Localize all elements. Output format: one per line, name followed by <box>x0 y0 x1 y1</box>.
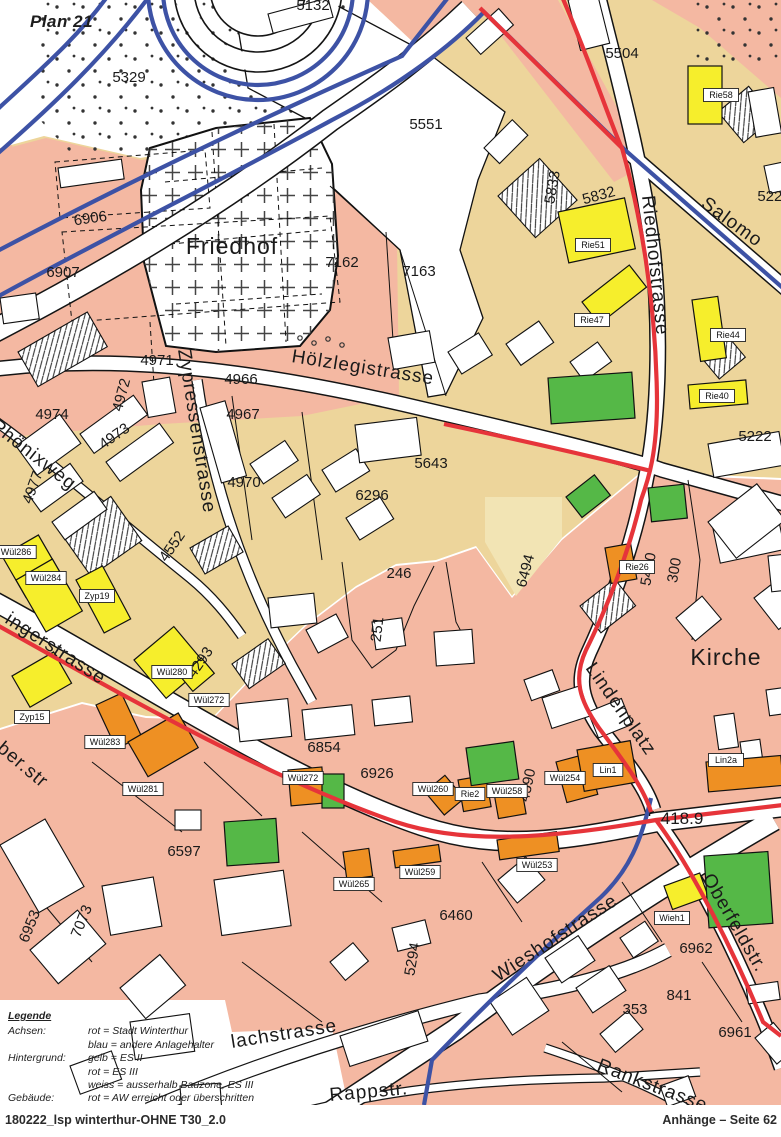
building-tag-label: Wül280 <box>157 667 188 677</box>
legend-row: weiss = ausserhalb Bauzone, ES III <box>8 1079 338 1092</box>
building-tag-label: Rie47 <box>580 315 604 325</box>
parcel-label: 4971 <box>140 352 173 369</box>
legend-row-category <box>8 1066 88 1079</box>
legend-row-text: rot = AW erreicht oder überschritten <box>88 1092 254 1105</box>
building-tag: Wül283 <box>85 736 125 749</box>
parcel-label: 251 <box>368 616 388 643</box>
parcel-label: 246 <box>386 565 411 582</box>
building-tag: Rie2 <box>455 788 485 801</box>
legend-row-text: blau = andere Anlagehalter <box>88 1039 214 1052</box>
parcel-label: 6962 <box>679 940 712 957</box>
building-tag-label: Wül259 <box>405 867 436 877</box>
parcel-label: 4967 <box>226 406 259 423</box>
building-tag-label: Wül286 <box>1 547 32 557</box>
parcel-label: 7163 <box>402 263 435 280</box>
building-tag: Wül272 <box>283 772 323 785</box>
building-tag-label: Lin2a <box>715 755 737 765</box>
building-tag-label: Zyp15 <box>19 712 44 722</box>
building-tag-label: Rie51 <box>581 240 605 250</box>
building-tag-label: Wül281 <box>128 784 159 794</box>
building-tag: Rie44 <box>711 329 746 342</box>
building-tag: Wül254 <box>545 772 585 785</box>
plan-page: 5132532955045551690669077162716358335832… <box>0 0 781 1137</box>
building-tag: Wül265 <box>334 878 374 891</box>
parcel-label: 6460 <box>439 907 472 924</box>
footer-filename: 180222_lsp winterthur-OHNE T30_2.0 <box>5 1113 226 1127</box>
building-tag: Wül280 <box>152 666 192 679</box>
parcel-label: 6961 <box>718 1024 751 1041</box>
building-tag: Wül281 <box>123 783 163 796</box>
parcel-label: 7162 <box>325 254 358 271</box>
parcel-label: 6907 <box>46 264 79 281</box>
building-tag-label: Rie44 <box>716 330 740 340</box>
building-tag: Zyp19 <box>80 590 115 603</box>
legend-row: Hintergrund:gelb = ES II <box>8 1052 338 1065</box>
footer-page-number: Anhänge – Seite 62 <box>662 1113 777 1127</box>
building-tag: Zyp15 <box>15 711 50 724</box>
parcel-label: 6597 <box>167 843 200 860</box>
building-tag: Wül260 <box>413 783 453 796</box>
map-canvas: 5132532955045551690669077162716358335832… <box>0 0 781 1105</box>
legend-row-category: Gebäude: <box>8 1092 88 1105</box>
parcel-label: 6926 <box>360 765 393 782</box>
parcel-label: 4970 <box>227 474 260 491</box>
building-tag-label: Wieh1 <box>659 913 685 923</box>
building-tag: Rie47 <box>575 314 610 327</box>
building-tag-label: Rie40 <box>705 391 729 401</box>
building-tag-label: Wül258 <box>492 786 523 796</box>
legend-title: Legende <box>8 1010 338 1023</box>
legend-row: rot = ES III <box>8 1066 338 1079</box>
building-tag-label: Wül284 <box>31 573 62 583</box>
parcel-label: 5551 <box>409 116 442 133</box>
building-tag-label: Wül272 <box>194 695 225 705</box>
building-tag: Rie51 <box>576 239 611 252</box>
parcel-label: 6854 <box>307 739 340 756</box>
parcel-label: 5643 <box>414 455 447 472</box>
parcel-label: 353 <box>622 1001 647 1018</box>
building-tag: Wieh1 <box>655 912 690 925</box>
building-tag-label: Wül272 <box>288 773 319 783</box>
building-tag-label: Zyp19 <box>84 591 109 601</box>
legend-row-text: rot = Stadt Winterthur <box>88 1025 188 1038</box>
spot-elevation: 418.9 <box>661 809 704 828</box>
legend-row-category <box>8 1039 88 1052</box>
parcel-label: 4974 <box>35 406 68 423</box>
legend-row: Achsen:rot = Stadt Winterthur <box>8 1025 338 1038</box>
legend-row: blau = andere Anlagehalter <box>8 1039 338 1052</box>
building-tag: Wül286 <box>0 546 36 559</box>
building-tag: Rie26 <box>620 561 655 574</box>
parcel-label: 5504 <box>605 45 638 62</box>
building-tag: Wül253 <box>517 859 557 872</box>
legend-row-text: rot = ES III <box>88 1066 138 1079</box>
building-tag-label: Lin1 <box>599 765 616 775</box>
building-tag: Rie40 <box>700 390 735 403</box>
page-footer: 180222_lsp winterthur-OHNE T30_2.0 Anhän… <box>0 1105 781 1137</box>
parcel-label: 5222 <box>738 428 771 445</box>
parcel-label: 4966 <box>224 371 257 388</box>
parcel-label: 5329 <box>112 69 145 86</box>
building-tag: Wül284 <box>26 572 66 585</box>
building-tag: Wül259 <box>400 866 440 879</box>
building-tag: Wül272 <box>189 694 229 707</box>
parcel-label: 841 <box>666 987 691 1004</box>
building-tag-label: Rie58 <box>709 90 733 100</box>
building-tag: Rie58 <box>704 89 739 102</box>
legend-row-category <box>8 1079 88 1092</box>
building-tag-label: Wül254 <box>550 773 581 783</box>
parcel-label: 6296 <box>355 487 388 504</box>
building-tag: Lin1 <box>593 764 623 777</box>
parcel-label: 5132 <box>296 0 329 14</box>
map-container: 5132532955045551690669077162716358335832… <box>0 0 781 1105</box>
area-label: Kirche <box>690 644 761 670</box>
building-tag-label: Wül265 <box>339 879 370 889</box>
area-label: Friedhof <box>186 233 278 259</box>
building-tag-label: Wül253 <box>522 860 553 870</box>
page-title: Plan 21 <box>30 12 93 32</box>
legend-row-text: weiss = ausserhalb Bauzone, ES III <box>88 1079 253 1092</box>
building-tag: Lin2a <box>709 754 744 767</box>
building-tag: Wül258 <box>487 785 527 798</box>
parcel-label: 5222 <box>757 188 781 205</box>
building-tag-label: Rie26 <box>625 562 649 572</box>
legend-row-category: Hintergrund: <box>8 1052 88 1065</box>
building-tag-label: Rie2 <box>461 789 480 799</box>
building-tag-label: Wül260 <box>418 784 449 794</box>
legend-row: Gebäude:rot = AW erreicht oder überschri… <box>8 1092 338 1105</box>
building-tag-label: Wül283 <box>90 737 121 747</box>
legend-row-text: gelb = ES II <box>88 1052 143 1065</box>
legend-row-category: Achsen: <box>8 1025 88 1038</box>
